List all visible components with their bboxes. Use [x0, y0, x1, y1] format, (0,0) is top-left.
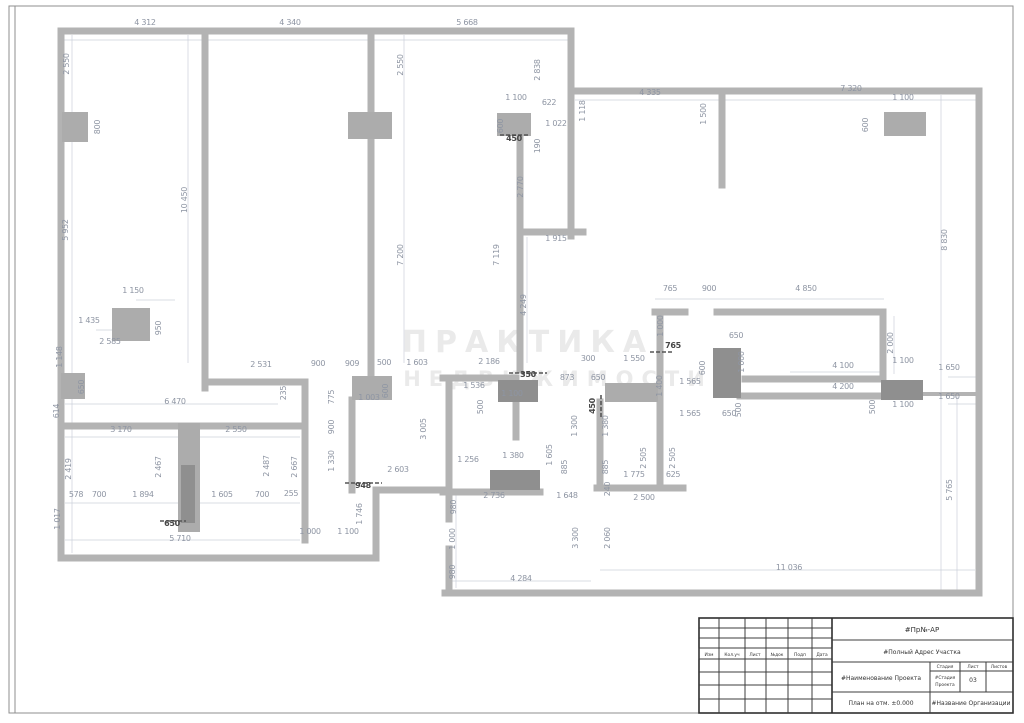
dimension-label: 4 340	[279, 18, 301, 27]
dimension-label: 600	[698, 361, 707, 376]
stage-value-line1: #Стадия	[935, 675, 956, 681]
project-number: #Пр№-АР	[905, 626, 939, 634]
dimension-label: 1 100	[892, 400, 914, 409]
dimension-label: 1 550	[623, 354, 645, 363]
rev-col-data: Дата	[816, 652, 828, 658]
watermark-line1: ПРАКТИКА	[402, 325, 654, 360]
dimension-label: 1 650	[938, 363, 960, 372]
dimension-label: 4 335	[639, 88, 661, 97]
dimension-label: 2 419	[64, 458, 73, 480]
dimension-label: 800	[93, 120, 102, 135]
rev-col-podp: Подп	[794, 652, 806, 658]
sheet-header: Лист	[967, 664, 979, 670]
dimension-label: 4 200	[832, 382, 854, 391]
dimension-label: 450	[588, 397, 597, 414]
dimension-label: 600	[381, 384, 390, 399]
dimension-label: 450	[506, 134, 523, 143]
dimension-label: 7 119	[492, 244, 501, 266]
dimension-label: 650	[591, 373, 606, 382]
columns	[61, 112, 926, 532]
dimension-label: 1 100	[892, 93, 914, 102]
dimension-label: 1 022	[545, 119, 567, 128]
dimension-label: 255	[284, 489, 299, 498]
dimension-label: 614	[52, 404, 61, 419]
dimension-label: 775	[327, 390, 336, 405]
pilaster	[62, 112, 88, 142]
wall-pier	[605, 383, 658, 402]
dimension-label: 2 060	[603, 527, 612, 549]
dimension-label: 7 200	[396, 244, 405, 266]
dimension-label: 948	[355, 481, 372, 490]
dimension-label: 1 000	[656, 315, 665, 337]
dimension-label: 2 487	[262, 455, 271, 477]
dimension-label: 900	[327, 420, 336, 435]
dimension-label: 650	[77, 380, 86, 395]
dimension-label: 900	[311, 359, 326, 368]
dimension-label: 873	[560, 373, 575, 382]
dimension-label: 4 284	[510, 574, 532, 583]
dimension-label: 600	[861, 118, 870, 133]
dimension-label: 1 565	[679, 409, 701, 418]
dimension-label: 300	[581, 354, 596, 363]
dimension-label: 1 605	[545, 444, 554, 466]
pilaster	[884, 112, 926, 136]
dimension-label: 500	[476, 400, 485, 415]
dimension-label: 1 100	[505, 93, 527, 102]
dimension-label: 1 435	[78, 316, 100, 325]
dimension-label: 5 952	[61, 219, 70, 241]
dimension-label: 1 603	[406, 358, 428, 367]
dimension-label: 4 312	[134, 18, 156, 27]
dimension-label: 1 000	[299, 527, 321, 536]
dimension-label: 1 148	[55, 346, 64, 368]
dimension-label: 1 894	[132, 490, 154, 499]
dimension-label: 2 186	[478, 357, 500, 366]
dimension-label: 885	[560, 460, 569, 475]
title-block: Изм Кол.уч Лист №док Подп Дата #Пр№-АР #…	[699, 618, 1013, 713]
dimension-label: 8 830	[940, 229, 949, 251]
dimension-label: 2 838	[533, 59, 542, 81]
dimension-label: 2 000	[886, 332, 895, 354]
dimension-label: 1 000	[737, 351, 746, 373]
dimension-label: 1 746	[355, 503, 364, 525]
dimension-label: 1 400	[655, 375, 664, 397]
dimension-label: 1 150	[122, 286, 144, 295]
dimension-label: 5 765	[945, 479, 954, 501]
site-address: #Полный Адрес Участка	[883, 649, 961, 656]
dimension-label: 1 650	[938, 392, 960, 401]
dimension-label: 4 249	[519, 294, 528, 316]
sheets-header: Листов	[991, 664, 1008, 670]
dimension-label: 1 536	[463, 381, 485, 390]
dimension-label: 2 531	[250, 360, 272, 369]
dimension-label: 2 550	[62, 53, 71, 75]
dimension-label: 2 550	[225, 425, 247, 434]
dimension-label: 700	[92, 490, 107, 499]
dimension-label: 980	[448, 565, 457, 580]
dimension-label: 1 300	[570, 415, 579, 437]
dimension-label: 1 100	[892, 356, 914, 365]
dimension-label: 1 100	[337, 527, 359, 536]
title-block-main: #Пр№-АР #Полный Адрес Участка #Наименова…	[832, 626, 1013, 713]
stage-value-line2: Проекта	[935, 682, 955, 688]
dimension-label: 240	[603, 482, 612, 497]
dimension-label: 2 667	[290, 456, 299, 478]
dimension-label: 2 603	[387, 465, 409, 474]
dimension-label: 909	[345, 359, 360, 368]
dimension-label: 950	[154, 321, 163, 336]
dimension-label: 4 100	[832, 361, 854, 370]
dimension-label: 3 170	[110, 425, 132, 434]
dimension-label: 5 668	[456, 18, 478, 27]
rev-col-izm: Изм	[705, 652, 714, 658]
dimension-label: 1 000	[448, 528, 457, 550]
dimension-label: 1 100	[501, 389, 523, 398]
dimension-label: 1 003	[358, 393, 380, 402]
project-name: #Наименование Проекта	[841, 675, 921, 682]
stage-header: Стадия	[937, 664, 954, 670]
dimension-label: 2 736	[483, 491, 505, 500]
dimension-label: 2 550	[396, 54, 405, 76]
dimension-label: 1 256	[457, 455, 479, 464]
dimension-label: 3 005	[419, 418, 428, 440]
floor-plan-canvas: ПРАКТИКА НЕДВИЖИМОСТИ 4 3124 3405 6682 5…	[0, 0, 1024, 723]
dimension-label: 7 320	[840, 84, 862, 93]
drawing-page: ПРАКТИКА НЕДВИЖИМОСТИ 4 3124 3405 6682 5…	[0, 0, 1024, 723]
dimension-label: 2 770	[516, 176, 525, 198]
rev-col-ndok: №док	[771, 652, 784, 658]
dimension-label: 980	[449, 500, 458, 515]
dimension-label: 900	[702, 284, 717, 293]
dimension-label: 578	[69, 490, 84, 499]
dimension-label: 885	[601, 460, 610, 475]
dimension-label: 2 505	[668, 447, 677, 469]
dimension-label: 4 850	[795, 284, 817, 293]
revision-table: Изм Кол.уч Лист №док Подп Дата	[699, 618, 832, 713]
dimension-label: 1 118	[578, 100, 587, 122]
dimension-label: 2 467	[154, 456, 163, 478]
dimension-label: 500	[734, 403, 743, 418]
dimension-label: 6 470	[164, 397, 186, 406]
dimension-label: 2 500	[633, 493, 655, 502]
dimension-label: 1 500	[699, 103, 708, 125]
dimension-label: 2 505	[639, 447, 648, 469]
sheet-number: 03	[969, 677, 977, 684]
sheet-title: План на отм. ±0.000	[848, 700, 913, 707]
shaft	[181, 465, 195, 523]
dimension-label: 1 648	[556, 491, 578, 500]
dimension-label: 11 036	[776, 563, 802, 572]
dimension-label: 2 585	[99, 337, 121, 346]
column	[881, 380, 923, 400]
dimension-label: 1 380	[502, 451, 524, 460]
pilaster	[348, 112, 392, 139]
dimension-label: 350	[520, 370, 537, 379]
dimension-label: 1 330	[327, 450, 336, 472]
dimension-label: 235	[279, 386, 288, 401]
rev-col-list: Лист	[749, 652, 761, 658]
dimension-label: 500	[377, 358, 392, 367]
dimension-label: 1 380	[601, 415, 610, 437]
dimension-label: 700	[255, 490, 270, 499]
dimension-label: 1 017	[53, 508, 62, 530]
dimension-label: 1 915	[545, 234, 567, 243]
dimension-label: 625	[666, 470, 681, 479]
dimension-label: 190	[533, 139, 542, 154]
dimension-label: 765	[665, 341, 682, 350]
dimension-label: 1 565	[679, 377, 701, 386]
column	[490, 470, 540, 490]
organization-name: #Название Организации	[932, 700, 1011, 707]
dimension-label: 650	[164, 519, 181, 528]
dimension-label: 1 605	[211, 490, 233, 499]
dimension-label: 5 710	[169, 534, 191, 543]
dimension-label: 765	[663, 284, 678, 293]
dimension-label: 10 450	[180, 187, 189, 213]
rev-col-koluch: Кол.уч	[724, 652, 740, 658]
dimension-label: 500	[868, 400, 877, 415]
dimension-label: 1 775	[623, 470, 645, 479]
dimension-label: 3 300	[571, 527, 580, 549]
dimension-label: 650	[729, 331, 744, 340]
dimension-label: 600	[496, 119, 505, 134]
dimension-label: 622	[542, 98, 557, 107]
